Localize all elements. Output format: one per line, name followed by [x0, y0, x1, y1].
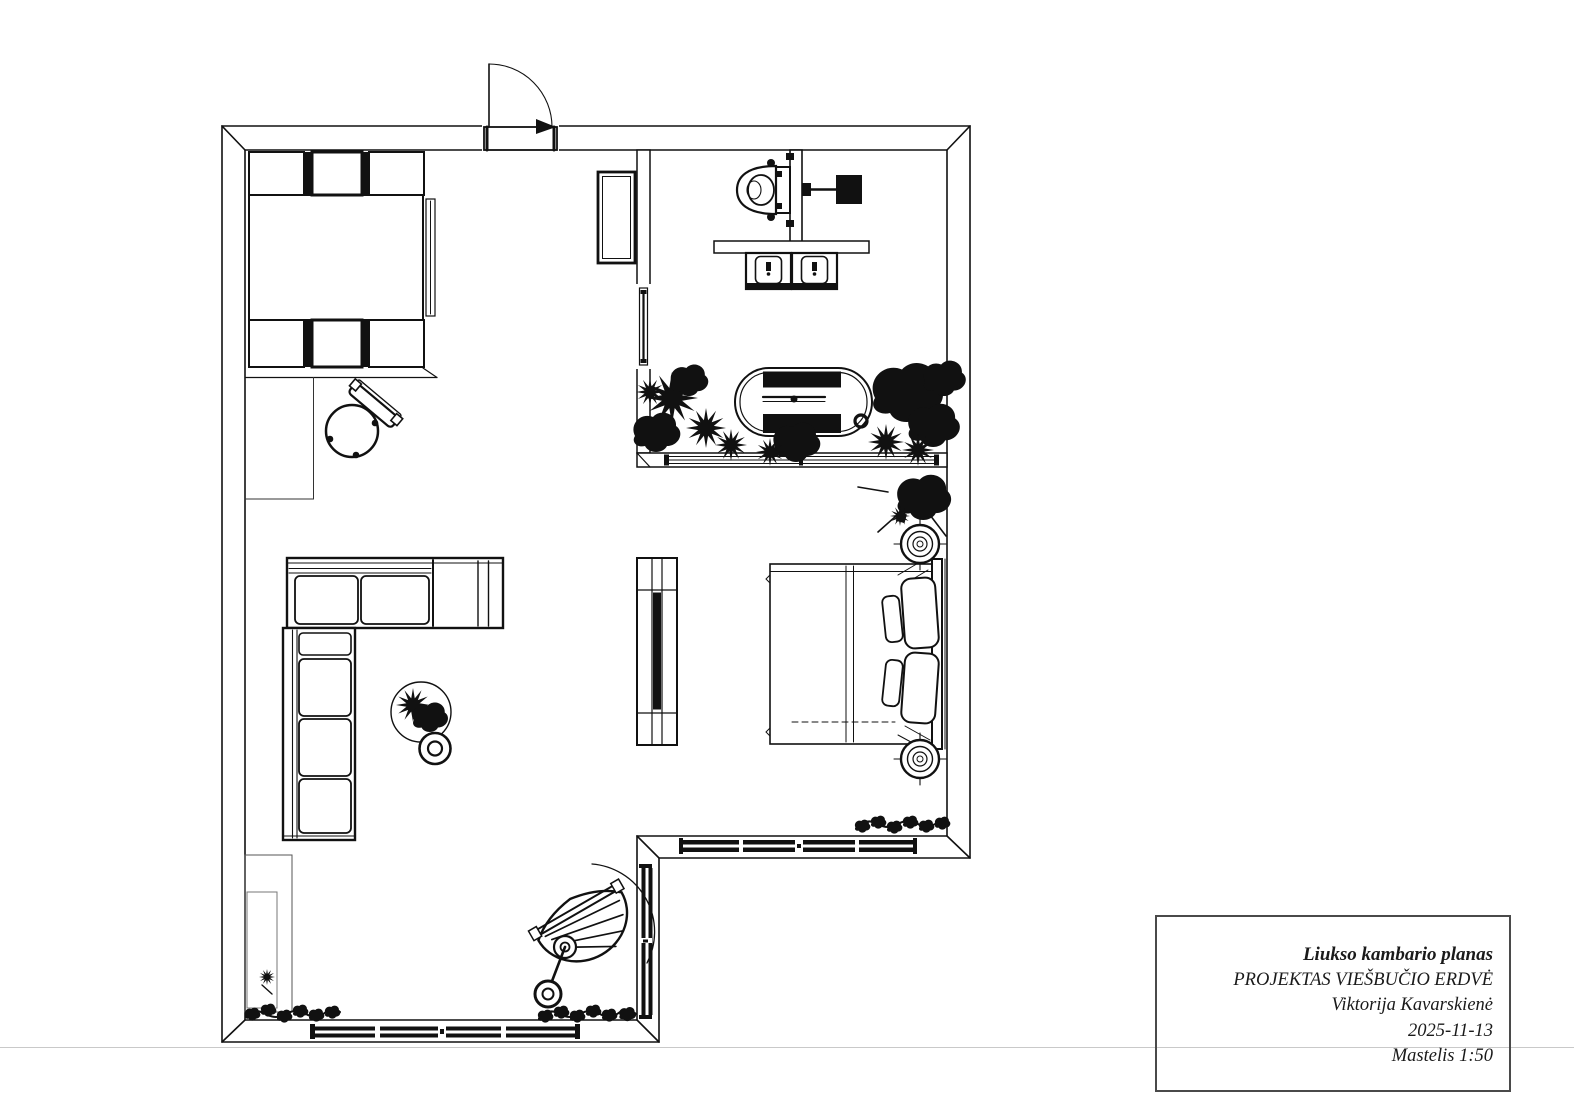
- sectional-sofa: [283, 558, 503, 840]
- window-west-notch: [639, 864, 653, 1019]
- vanity-double-sink: [714, 241, 869, 290]
- shower-head: [802, 175, 862, 204]
- desk-chair: [326, 377, 404, 458]
- entry-door: [482, 64, 559, 152]
- bed: [766, 559, 945, 749]
- wall-cabinet: [598, 172, 635, 263]
- wardrobe: [246, 152, 437, 378]
- project-title: Liukso kambario planas: [1167, 942, 1493, 968]
- project-subtitle: PROJEKTAS VIEŠBUČIO ERDVĖ: [1167, 968, 1493, 994]
- title-block: Liukso kambario planas PROJEKTAS VIEŠBUČ…: [1155, 915, 1511, 1092]
- author-name: Viktorija Kavarskienė: [1167, 993, 1493, 1019]
- coffee-table: [391, 682, 451, 764]
- toilet: [737, 153, 794, 227]
- pillow: [901, 652, 940, 724]
- bedroom-plant: [858, 475, 951, 536]
- hanging-chair: [525, 864, 655, 1007]
- drawing-page: Liukso kambario planas PROJEKTAS VIEŠBUČ…: [0, 0, 1574, 1114]
- tv-partition: [637, 558, 677, 745]
- desk-nook: [245, 378, 314, 500]
- chair-base: [535, 981, 561, 1007]
- bedroom-vine: [855, 816, 950, 834]
- window-bathroom-south: [664, 455, 939, 466]
- window-bedroom-south: [679, 838, 917, 854]
- pocket-door: [636, 284, 652, 369]
- pillow: [901, 577, 940, 649]
- tv-icon: [653, 593, 661, 710]
- window-living-south: [310, 1024, 580, 1039]
- door-swing-arc: [489, 64, 552, 127]
- scale-label: Mastelis 1:50: [1167, 1044, 1493, 1070]
- date: 2025-11-13: [1167, 1019, 1493, 1045]
- small-plant-icon: [259, 969, 275, 985]
- mirror-alcove: [245, 855, 292, 1012]
